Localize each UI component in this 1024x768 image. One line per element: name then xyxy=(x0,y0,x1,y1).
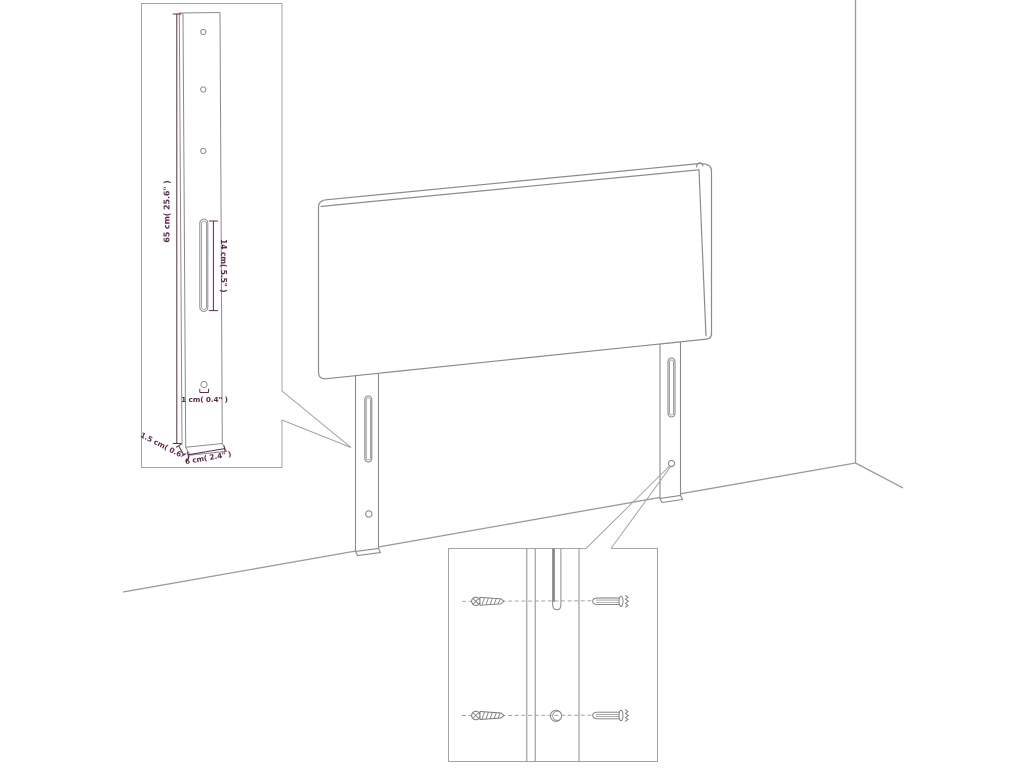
machine-screw-top-body xyxy=(593,598,620,605)
machine-screw-bottom-washer xyxy=(619,710,623,720)
diagram-canvas: 65 cm( 25.6" ) 14 cm( 5.5" ) 1 cm( 0.4" … xyxy=(0,0,1024,768)
left-leg xyxy=(356,372,381,556)
right-leg-hole xyxy=(668,460,674,466)
right-leg xyxy=(660,342,683,503)
headboard-dimension-diagram: 65 cm( 25.6" ) 14 cm( 5.5" ) 1 cm( 0.4" … xyxy=(0,0,1024,768)
label-bracket-height: 65 cm( 25.6" ) xyxy=(163,180,172,242)
machine-screw-top-washer xyxy=(619,596,623,606)
label-hole-diameter: 1 cm( 0.4" ) xyxy=(181,395,228,404)
machine-screw-bottom-body xyxy=(593,712,620,719)
right-leg-body xyxy=(660,342,681,499)
label-slot-length: 14 cm( 5.5" ) xyxy=(219,239,228,292)
bracket-top-edge xyxy=(179,13,220,14)
background xyxy=(0,0,1024,768)
left-leg-hole xyxy=(366,511,372,517)
wood-screw-bottom xyxy=(472,711,504,719)
wood-screw-top xyxy=(472,597,504,605)
